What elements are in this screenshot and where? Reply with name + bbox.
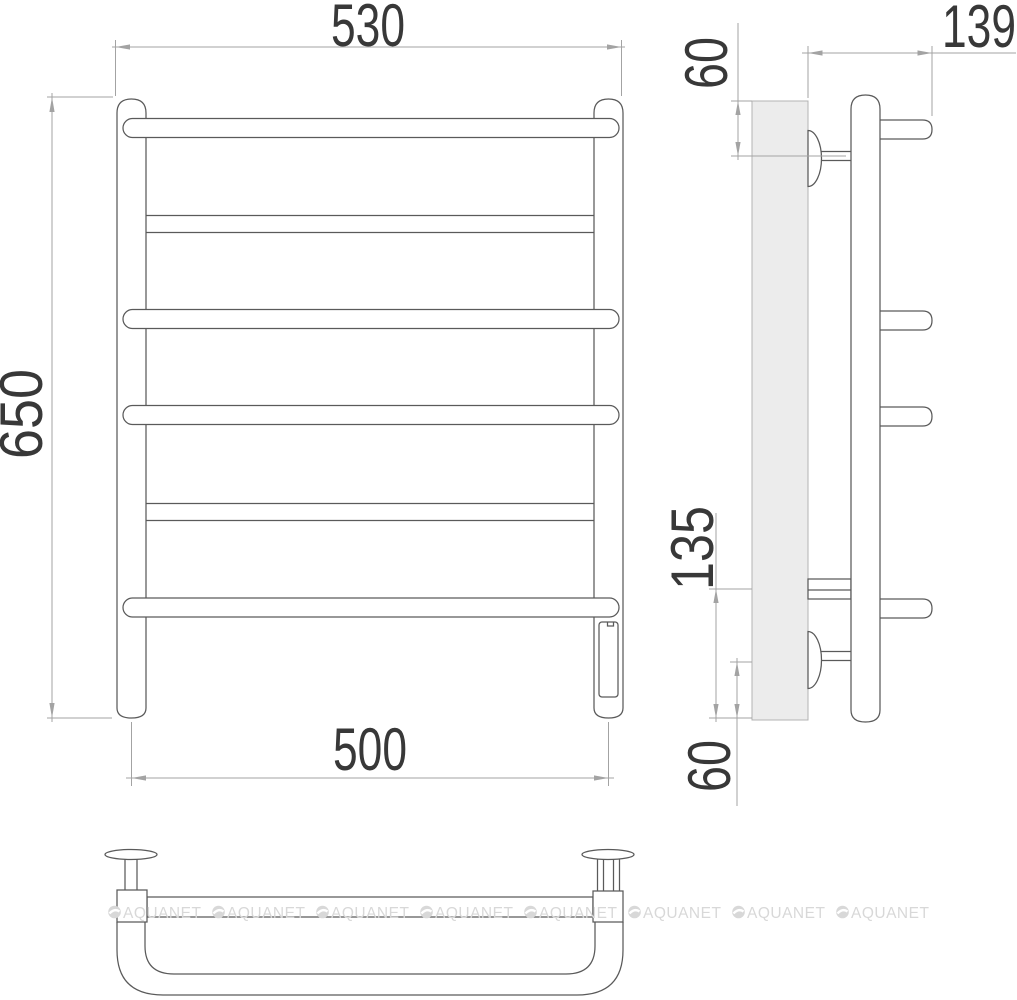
side-bar-3 [874, 407, 932, 426]
bottom-u-tube-inner [145, 922, 595, 974]
bottom-u-tube-outer [117, 922, 623, 995]
front-bar-3 [123, 406, 619, 425]
front-view: 530 650 500 [0, 0, 625, 786]
dim-width-bottom: 500 [126, 716, 614, 786]
side-bar-2 [874, 311, 932, 330]
svg-text:AQUANET: AQUANET [227, 905, 305, 922]
svg-text:AQUANET: AQUANET [435, 905, 513, 922]
dim-530-label: 530 [331, 0, 405, 59]
svg-text:AQUANET: AQUANET [643, 905, 721, 922]
dim-bottom-bracket-offset: 60 [676, 658, 752, 806]
dim-bottom-bar-offset: 135 [659, 506, 752, 722]
side-post [851, 95, 880, 722]
bracket-top [808, 131, 851, 187]
dim-135-label: 135 [659, 506, 726, 590]
dim-height: 650 [0, 93, 113, 722]
watermark: AQUANET [836, 905, 929, 922]
side-bar-1 [874, 120, 932, 139]
front-bar-1 [123, 119, 619, 138]
bracket-bottom [808, 632, 851, 689]
side-bar-4 [874, 599, 932, 618]
dim-width-top: 530 [112, 0, 625, 96]
front-rear-bar-lower [146, 504, 594, 521]
wall-section [752, 101, 808, 720]
watermark: AQUANET [524, 905, 617, 922]
dim-500-label: 500 [333, 716, 407, 783]
watermark: AQUANET [212, 905, 305, 922]
watermark: AQUANET [316, 905, 409, 922]
dim-60-top-label: 60 [673, 37, 740, 89]
side-rear-connector [808, 579, 851, 599]
drawing-page: 530 650 500 [0, 0, 1017, 1000]
svg-text:AQUANET: AQUANET [851, 905, 929, 922]
front-rear-bar-upper [146, 216, 594, 233]
front-bar-4 [123, 598, 619, 617]
towel-rail-drawing: 530 650 500 [0, 0, 1017, 1000]
watermark: AQUANET [732, 905, 825, 922]
dim-650-label: 650 [0, 369, 55, 459]
svg-text:AQUANET: AQUANET [331, 905, 409, 922]
svg-text:AQUANET: AQUANET [747, 905, 825, 922]
dim-60-bottom-label: 60 [676, 740, 743, 792]
watermark: AQUANET [108, 905, 201, 922]
svg-text:AQUANET: AQUANET [539, 905, 617, 922]
side-view: 139 60 135 60 [659, 0, 1016, 806]
front-bar-2 [123, 310, 619, 329]
watermark: AQUANET [420, 905, 513, 922]
svg-text:AQUANET: AQUANET [123, 905, 201, 922]
bottom-view [105, 850, 634, 996]
dim-depth: 139 [802, 0, 1016, 116]
watermark: AQUANET [628, 905, 721, 922]
heating-element-box [599, 622, 618, 697]
dim-139-label: 139 [942, 0, 1016, 60]
